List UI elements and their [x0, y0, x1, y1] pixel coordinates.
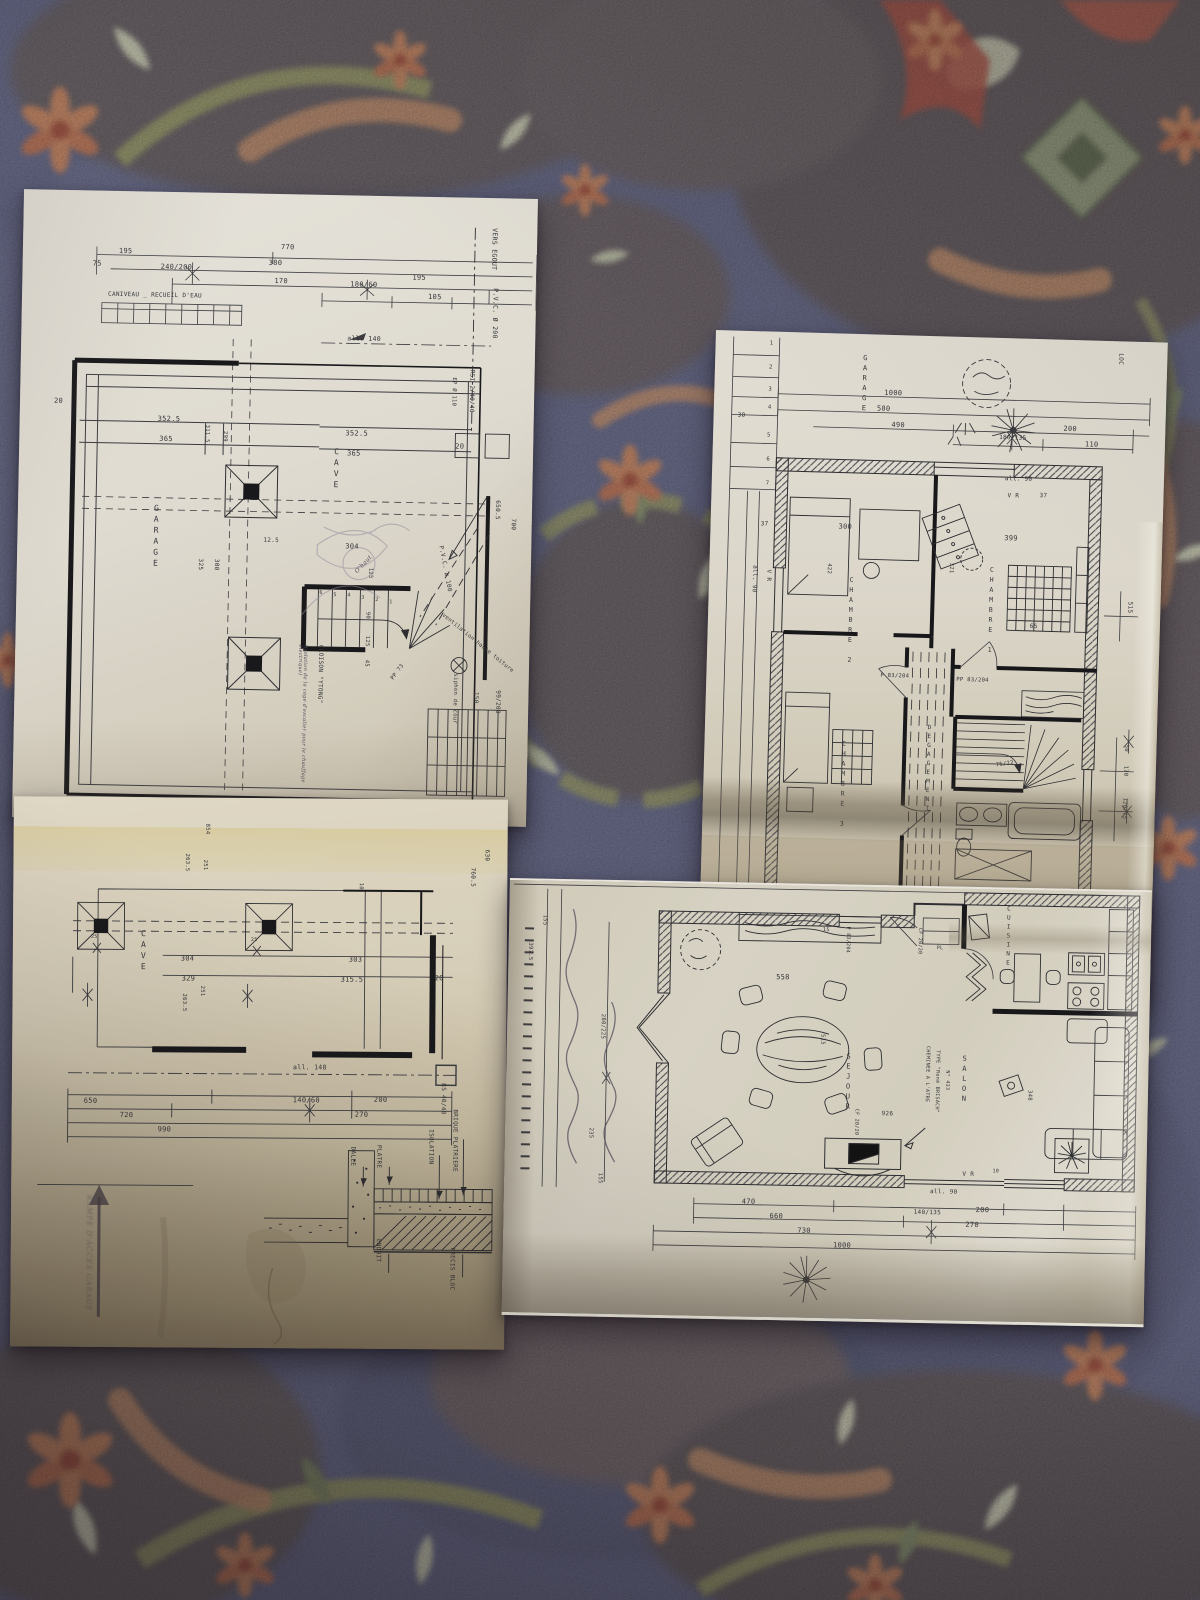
dim-label: 760.5	[469, 867, 475, 887]
step-number: 3	[768, 387, 772, 393]
stair	[317, 589, 450, 650]
step-number: 4	[768, 405, 772, 411]
stair-number: 5	[333, 593, 336, 598]
dim-label: 195	[119, 248, 133, 255]
dim-rows	[37, 1062, 456, 1187]
handwritten-rampe: RAMPE D'ACCES GARAGE	[84, 1195, 92, 1312]
dim-label: 105	[428, 294, 442, 301]
note-all90: all. 90	[751, 565, 758, 593]
room-label-chambre3: CHAMBRE 3	[838, 740, 847, 830]
note-all90: all. 90	[930, 1189, 958, 1196]
stair-number: 2	[375, 598, 378, 603]
bottom-dimension-lines	[652, 1197, 1136, 1309]
dim-label: 155	[541, 915, 547, 926]
kitchen-walls	[963, 905, 1140, 1014]
dim-label: 140/135	[914, 1210, 942, 1217]
dim-label: 515	[1126, 602, 1132, 614]
corridor-and-stairs	[906, 652, 1085, 897]
dim-label: 280/225	[599, 1014, 605, 1039]
detail-label-precis: PRECIS BLOC	[448, 1247, 454, 1290]
dim-label: 20	[54, 398, 63, 405]
note-vr: V R	[962, 1172, 974, 1178]
handwritten-cloison-note: (isolation de la cage d'escalier pour le…	[295, 644, 308, 794]
dim-label: 170	[274, 278, 288, 285]
column-footing	[77, 902, 124, 949]
dim-label: 1000	[884, 390, 902, 398]
stair-number: 3	[361, 596, 364, 601]
step-number: 2	[769, 365, 773, 371]
dim-label: 650	[84, 1098, 98, 1105]
dim-label: 12.5	[263, 538, 279, 544]
column-footing	[245, 904, 292, 951]
note-vers-egout: VERS EGOUT	[491, 228, 498, 270]
dim-label: 30	[738, 413, 746, 419]
dim-label: 270	[965, 1222, 979, 1229]
interior-walls	[776, 471, 1102, 901]
dim-label: 263.5	[183, 853, 189, 871]
dim-label: 25	[91, 935, 98, 940]
detail-label-platre: PLATRE	[375, 1145, 381, 1169]
stair-number: 1	[389, 600, 392, 605]
room-label-degagement: DEGAGEMENT	[924, 724, 933, 814]
photo-of-floor-plans: { "scene": {"subject": "four architectur…	[0, 0, 1200, 1600]
dim-label: 926	[881, 1111, 893, 1117]
dim-label: 422	[825, 563, 831, 574]
detail-label-dalle: DALLE	[349, 1147, 355, 1167]
dim-label: 854	[204, 824, 210, 835]
dim-label: 490	[891, 422, 905, 429]
dim-label: 558	[776, 974, 790, 981]
dim-label: 240/200	[161, 264, 193, 272]
exterior-walls	[634, 886, 1140, 1192]
detail-label-brique: BRIQUE PLATRIERE	[451, 1109, 457, 1172]
dim-label: 75	[93, 260, 102, 267]
bathroom-fixtures	[955, 801, 1081, 882]
dim-label: 20	[455, 443, 464, 450]
handwritten-margin-note	[562, 909, 619, 1164]
room-label-chambre1: CHAMBRE 1	[986, 566, 995, 656]
dim-label: 650.5	[494, 500, 500, 520]
dim-label: 180/60	[350, 281, 377, 289]
note-vr: V R	[1007, 493, 1019, 499]
stair-number: 6	[319, 591, 322, 596]
dim-label: 315.5	[341, 977, 364, 984]
dim-label: 304	[181, 955, 195, 962]
note-rsi: RSI 2/40/40	[468, 370, 475, 413]
dim-label: 170	[1122, 766, 1128, 777]
column-footing	[228, 637, 281, 690]
dim-label: 303	[349, 957, 363, 964]
sheet-ground-floor-plan: 155 397.5 280/225 235 155 15 558 515 SEJ…	[502, 878, 1152, 1327]
room-label-salon: SALON	[960, 1055, 968, 1105]
dim-label: 99/200	[494, 690, 500, 714]
fireplace	[824, 1126, 925, 1177]
dim-label: 125	[367, 568, 373, 579]
dim-label: 580	[877, 406, 891, 413]
dim-label: 10	[357, 883, 363, 890]
dim-label: 630	[483, 850, 489, 862]
dim-label: 304	[345, 543, 359, 550]
dim-label: 200	[1063, 426, 1077, 433]
dim-label: 352.5	[158, 416, 181, 423]
note-loc: LOC	[1117, 353, 1123, 365]
sheet-foundation-plan: 854 251 263.5 CAVE 304 329 251 263.5 303…	[10, 796, 508, 1349]
sheet-basement-plan: 195 770 75 240/200 380 170 180/60 195 10…	[12, 189, 538, 827]
dim-label: 20	[435, 975, 444, 982]
column-footing	[225, 465, 278, 518]
room-label-sejour: SEJOUR	[844, 1052, 852, 1112]
dim-label: 300	[213, 559, 219, 571]
kitchen-furniture	[966, 907, 1134, 1010]
dim-label: all. 140	[347, 335, 381, 342]
dim-label: 200	[976, 1207, 990, 1214]
note-cheminee-1: CHEMINEE A L'ATRE	[924, 1046, 930, 1102]
dim-label: 365	[347, 450, 361, 457]
dim-label: 37	[761, 521, 769, 527]
dim-label: 321	[947, 563, 953, 574]
dim-label: 155	[596, 1173, 602, 1184]
door-label: P 83/204	[880, 674, 909, 680]
dim-label: 660	[769, 1213, 783, 1220]
door-swings	[874, 639, 998, 838]
dim-label: 120/75	[1120, 797, 1126, 819]
note-cheminee-3: N° 433	[944, 1070, 949, 1090]
dim-label: 720	[120, 1112, 134, 1119]
dim-label: 352.5	[345, 430, 368, 437]
room-label-garage: GARAGE	[860, 354, 869, 414]
dim-label: 311.5	[203, 425, 209, 443]
dim-label: 770	[281, 244, 295, 251]
dim-label: 235	[587, 1128, 593, 1139]
dim-label: 251	[199, 986, 205, 997]
note-cheminee-2: TYPE "René BRISACH"	[934, 1050, 940, 1113]
dim-label: 37	[1039, 493, 1047, 499]
step-number: 6	[766, 457, 770, 463]
stair-number: 4	[347, 593, 350, 598]
dim-label: 110	[1085, 441, 1099, 448]
dim-label: 990	[158, 1126, 172, 1133]
note-cf: CF 20/20	[917, 928, 923, 955]
dim-label: 299	[221, 431, 227, 442]
detail-label-isolation: ISOLATION	[427, 1129, 433, 1164]
dim-label: 195	[412, 275, 426, 282]
door-label: P 83/204	[845, 926, 851, 953]
right-dimension-lines	[1098, 591, 1139, 842]
room-label-cave: CAVE	[139, 929, 147, 973]
step-number: 7	[766, 481, 770, 487]
dim-label: 180/135	[999, 435, 1027, 442]
note-siphon: siphon de cour	[451, 673, 457, 724]
dim-label: 270	[355, 1112, 369, 1119]
dim-label: 50	[1122, 745, 1128, 752]
step-number: 1	[770, 342, 774, 348]
room-label-garage: GARAGE	[151, 504, 160, 570]
plan-lines	[72, 889, 453, 1050]
stains	[160, 1217, 306, 1344]
inner-walls	[73, 374, 481, 792]
axis-lines	[77, 336, 490, 800]
door-label: PP 83/204	[956, 678, 989, 684]
dim-label: 45	[363, 660, 369, 667]
dim-label: 300	[838, 523, 852, 530]
thick-walls	[66, 360, 490, 802]
dim-label: 25	[251, 938, 258, 943]
dim-label: 470	[742, 1199, 756, 1206]
dim-label: 730	[797, 1228, 811, 1235]
dim-label: 348	[1026, 1090, 1032, 1101]
note-pl: PL	[937, 946, 944, 951]
dim-label: 90	[364, 612, 370, 619]
dim-label: 140/60	[293, 1097, 320, 1104]
dim-label: 325	[197, 559, 203, 571]
dim-label: all. 140	[293, 1064, 327, 1071]
dim-label: 1000	[833, 1242, 851, 1249]
dim-label: 263.5	[180, 993, 186, 1011]
note-pvc200: P.V.C. Ø 200	[491, 288, 498, 339]
dim-label: 65	[1030, 624, 1038, 630]
dim-label: 15	[823, 928, 830, 933]
dim-label: 200	[374, 1097, 388, 1104]
thick-walls	[152, 889, 443, 1059]
note-vr: V R	[765, 569, 771, 581]
ground-floor-linework	[502, 880, 1152, 1324]
dim-label: 125	[363, 636, 369, 647]
dim-label: 251	[201, 860, 207, 871]
dim-label: 329	[182, 975, 196, 982]
detail-label-enduit: ENDUIT	[375, 1239, 381, 1263]
dim-label: 700	[510, 519, 516, 531]
dim-label: 150	[472, 692, 478, 704]
dim-label: 399	[1004, 535, 1018, 542]
dim-label: 10	[992, 1169, 999, 1174]
note-cloison: CLOISON "YTONG"	[316, 645, 323, 704]
step-number: 5	[767, 433, 771, 439]
note-all90: all. 90	[1005, 476, 1033, 483]
note-rs: RS 40/40	[440, 1083, 446, 1114]
note-ep110: EP Ø 110	[450, 377, 456, 406]
dim-label: 380	[269, 260, 283, 267]
dim-label: 515	[819, 1034, 825, 1045]
room-label-cave: CAVE	[331, 447, 340, 491]
note-cf: CF 20/20	[853, 1109, 859, 1136]
dim-label: 365	[159, 436, 173, 443]
salon-furniture	[997, 1017, 1129, 1173]
dim-label: 397.5	[526, 942, 532, 960]
room-label-chambre2: CHAMBRE 2	[846, 576, 855, 666]
room-label-cuisine: CUISINE	[1004, 906, 1011, 969]
